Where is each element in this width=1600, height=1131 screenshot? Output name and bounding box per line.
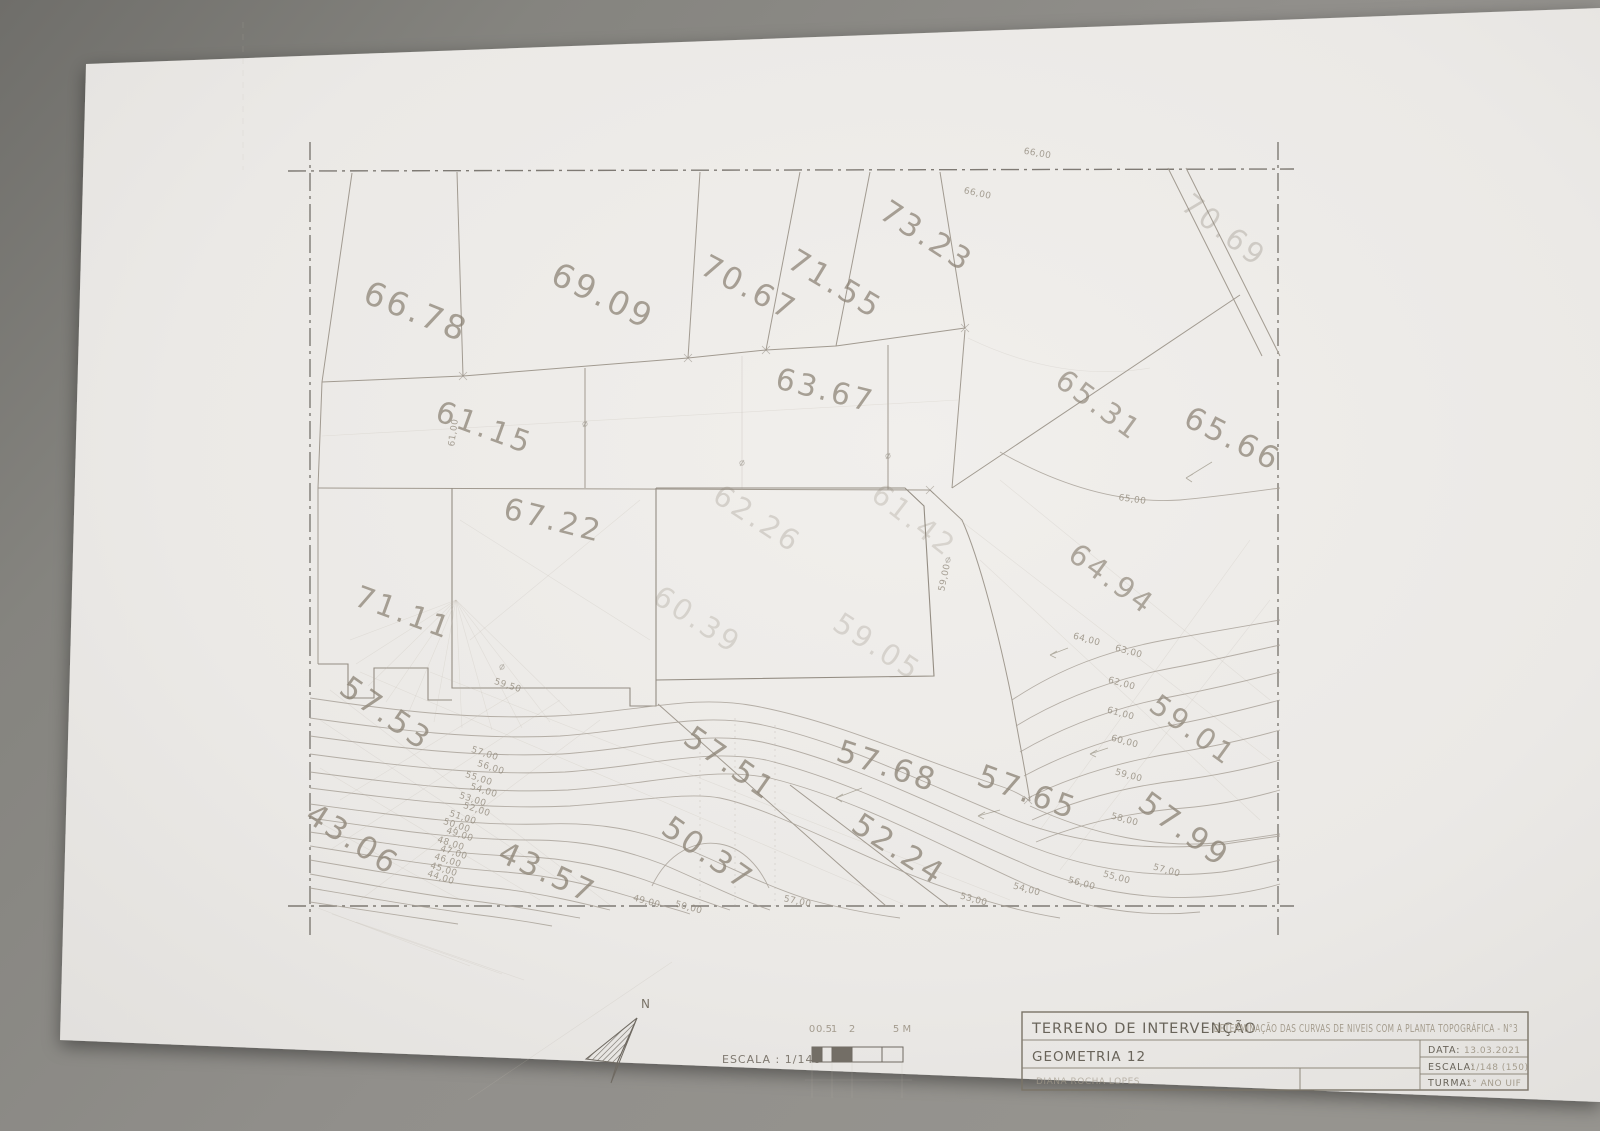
scale-tick: 0.5	[816, 1024, 832, 1035]
titleblock-project-subtitle: - DETERMINAÇÃO DAS CURVAS DE NIVEIS COM …	[1208, 1022, 1518, 1035]
photo-of-drawing: 66.78 69.09 70.67 71.55 73.23 70.69 65.3…	[0, 0, 1600, 1131]
scale-tick: 1	[831, 1024, 837, 1035]
titleblock-date-value: 13.03.2021	[1464, 1046, 1521, 1056]
scale-tick: 0	[809, 1024, 815, 1035]
scale-tick: 2	[849, 1024, 855, 1035]
titleblock-course: GEOMETRIA 12	[1032, 1049, 1146, 1065]
titleblock-author: DIANA ROCHA LOPES	[1036, 1077, 1140, 1087]
titleblock-scale-value: 1/148 (150)	[1470, 1063, 1529, 1073]
survey-drawing: 66.78 69.09 70.67 71.55 73.23 70.69 65.3…	[0, 0, 1600, 1131]
titleblock-class-label: TURMA:	[1427, 1078, 1471, 1089]
titleblock-class-value: 1° ANO UIF	[1466, 1079, 1521, 1089]
north-label: N	[641, 997, 650, 1011]
titleblock-date-label: DATA:	[1428, 1045, 1461, 1056]
titleblock-scale-label: ESCALA:	[1428, 1062, 1475, 1073]
scale-bar-segment	[832, 1047, 852, 1062]
scale-bar-segment	[812, 1047, 822, 1062]
paper-sheet	[60, 8, 1600, 1102]
scale-tick: 5 M	[893, 1024, 911, 1035]
scale-caption: ESCALA : 1/148	[722, 1053, 821, 1066]
